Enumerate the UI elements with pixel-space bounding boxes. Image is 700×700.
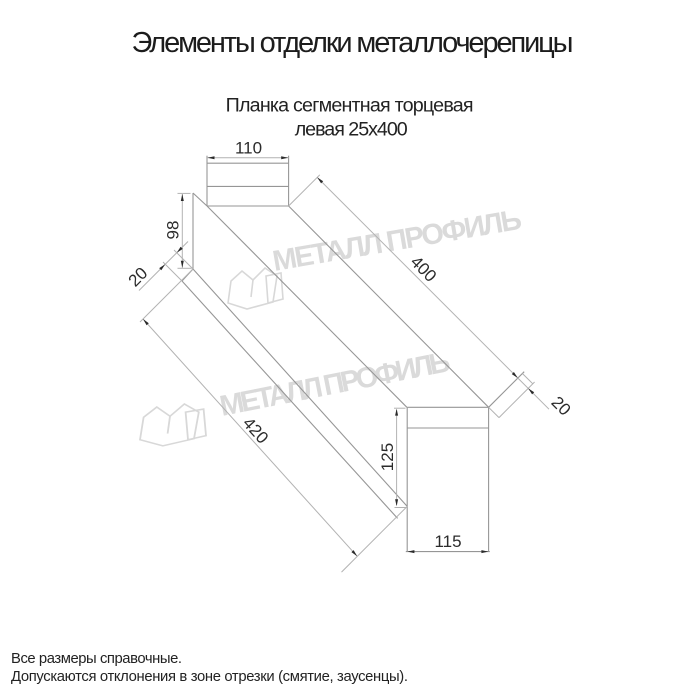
- svg-text:115: 115: [434, 532, 461, 551]
- svg-text:Элементы отделки металлочерепи: Элементы отделки металлочерепицы: [132, 27, 574, 59]
- svg-text:Допускаются отклонения в зоне: Допускаются отклонения в зоне отрезки (с…: [11, 669, 408, 685]
- svg-text:Планка сегментная торцевая: Планка сегментная торцевая: [226, 94, 474, 116]
- svg-text:левая 25х400: левая 25х400: [295, 119, 408, 141]
- svg-text:Все размеры справочные.: Все размеры справочные.: [11, 651, 182, 667]
- svg-text:98: 98: [164, 221, 183, 240]
- svg-text:125: 125: [378, 443, 397, 471]
- svg-text:110: 110: [235, 139, 262, 158]
